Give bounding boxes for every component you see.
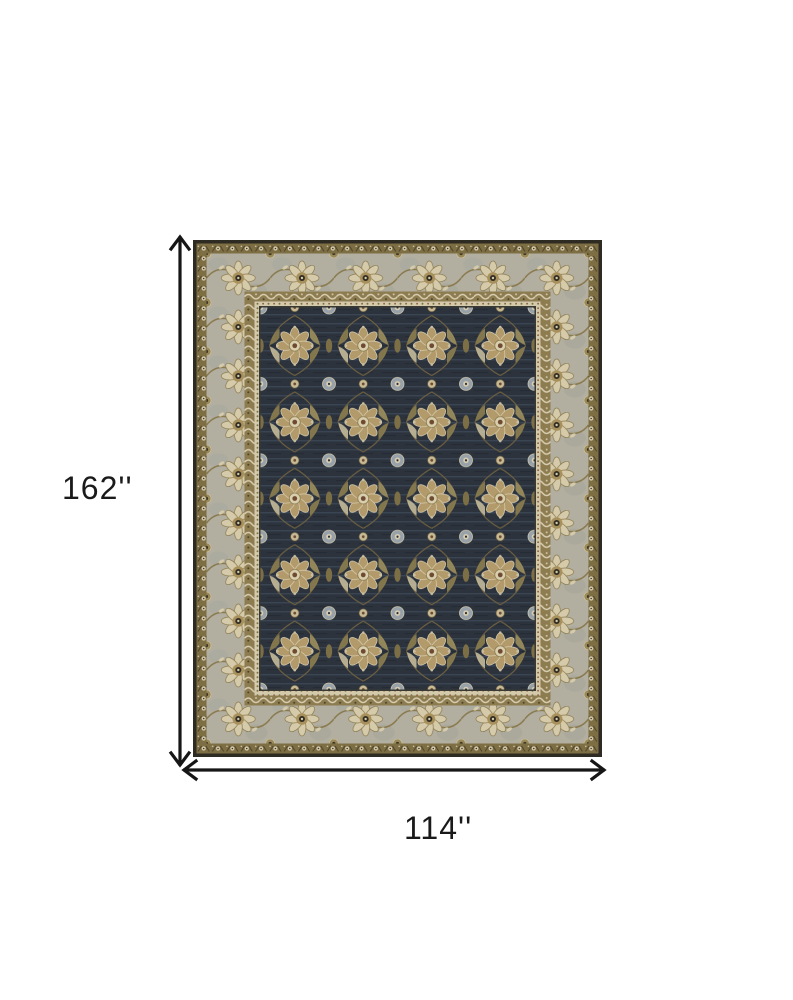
oriental-rug-graphic (193, 240, 602, 757)
product-dimension-diagram: 162'' 114'' (0, 0, 793, 1000)
height-dimension-label: 162'' (62, 470, 133, 507)
double-headed-vertical-arrow-icon (166, 233, 194, 769)
height-dimension-arrow (166, 233, 194, 769)
double-headed-horizontal-arrow-icon (178, 755, 610, 785)
width-dimension-arrow (178, 755, 610, 785)
rug-image (193, 240, 602, 757)
width-dimension-label: 114'' (404, 810, 472, 847)
